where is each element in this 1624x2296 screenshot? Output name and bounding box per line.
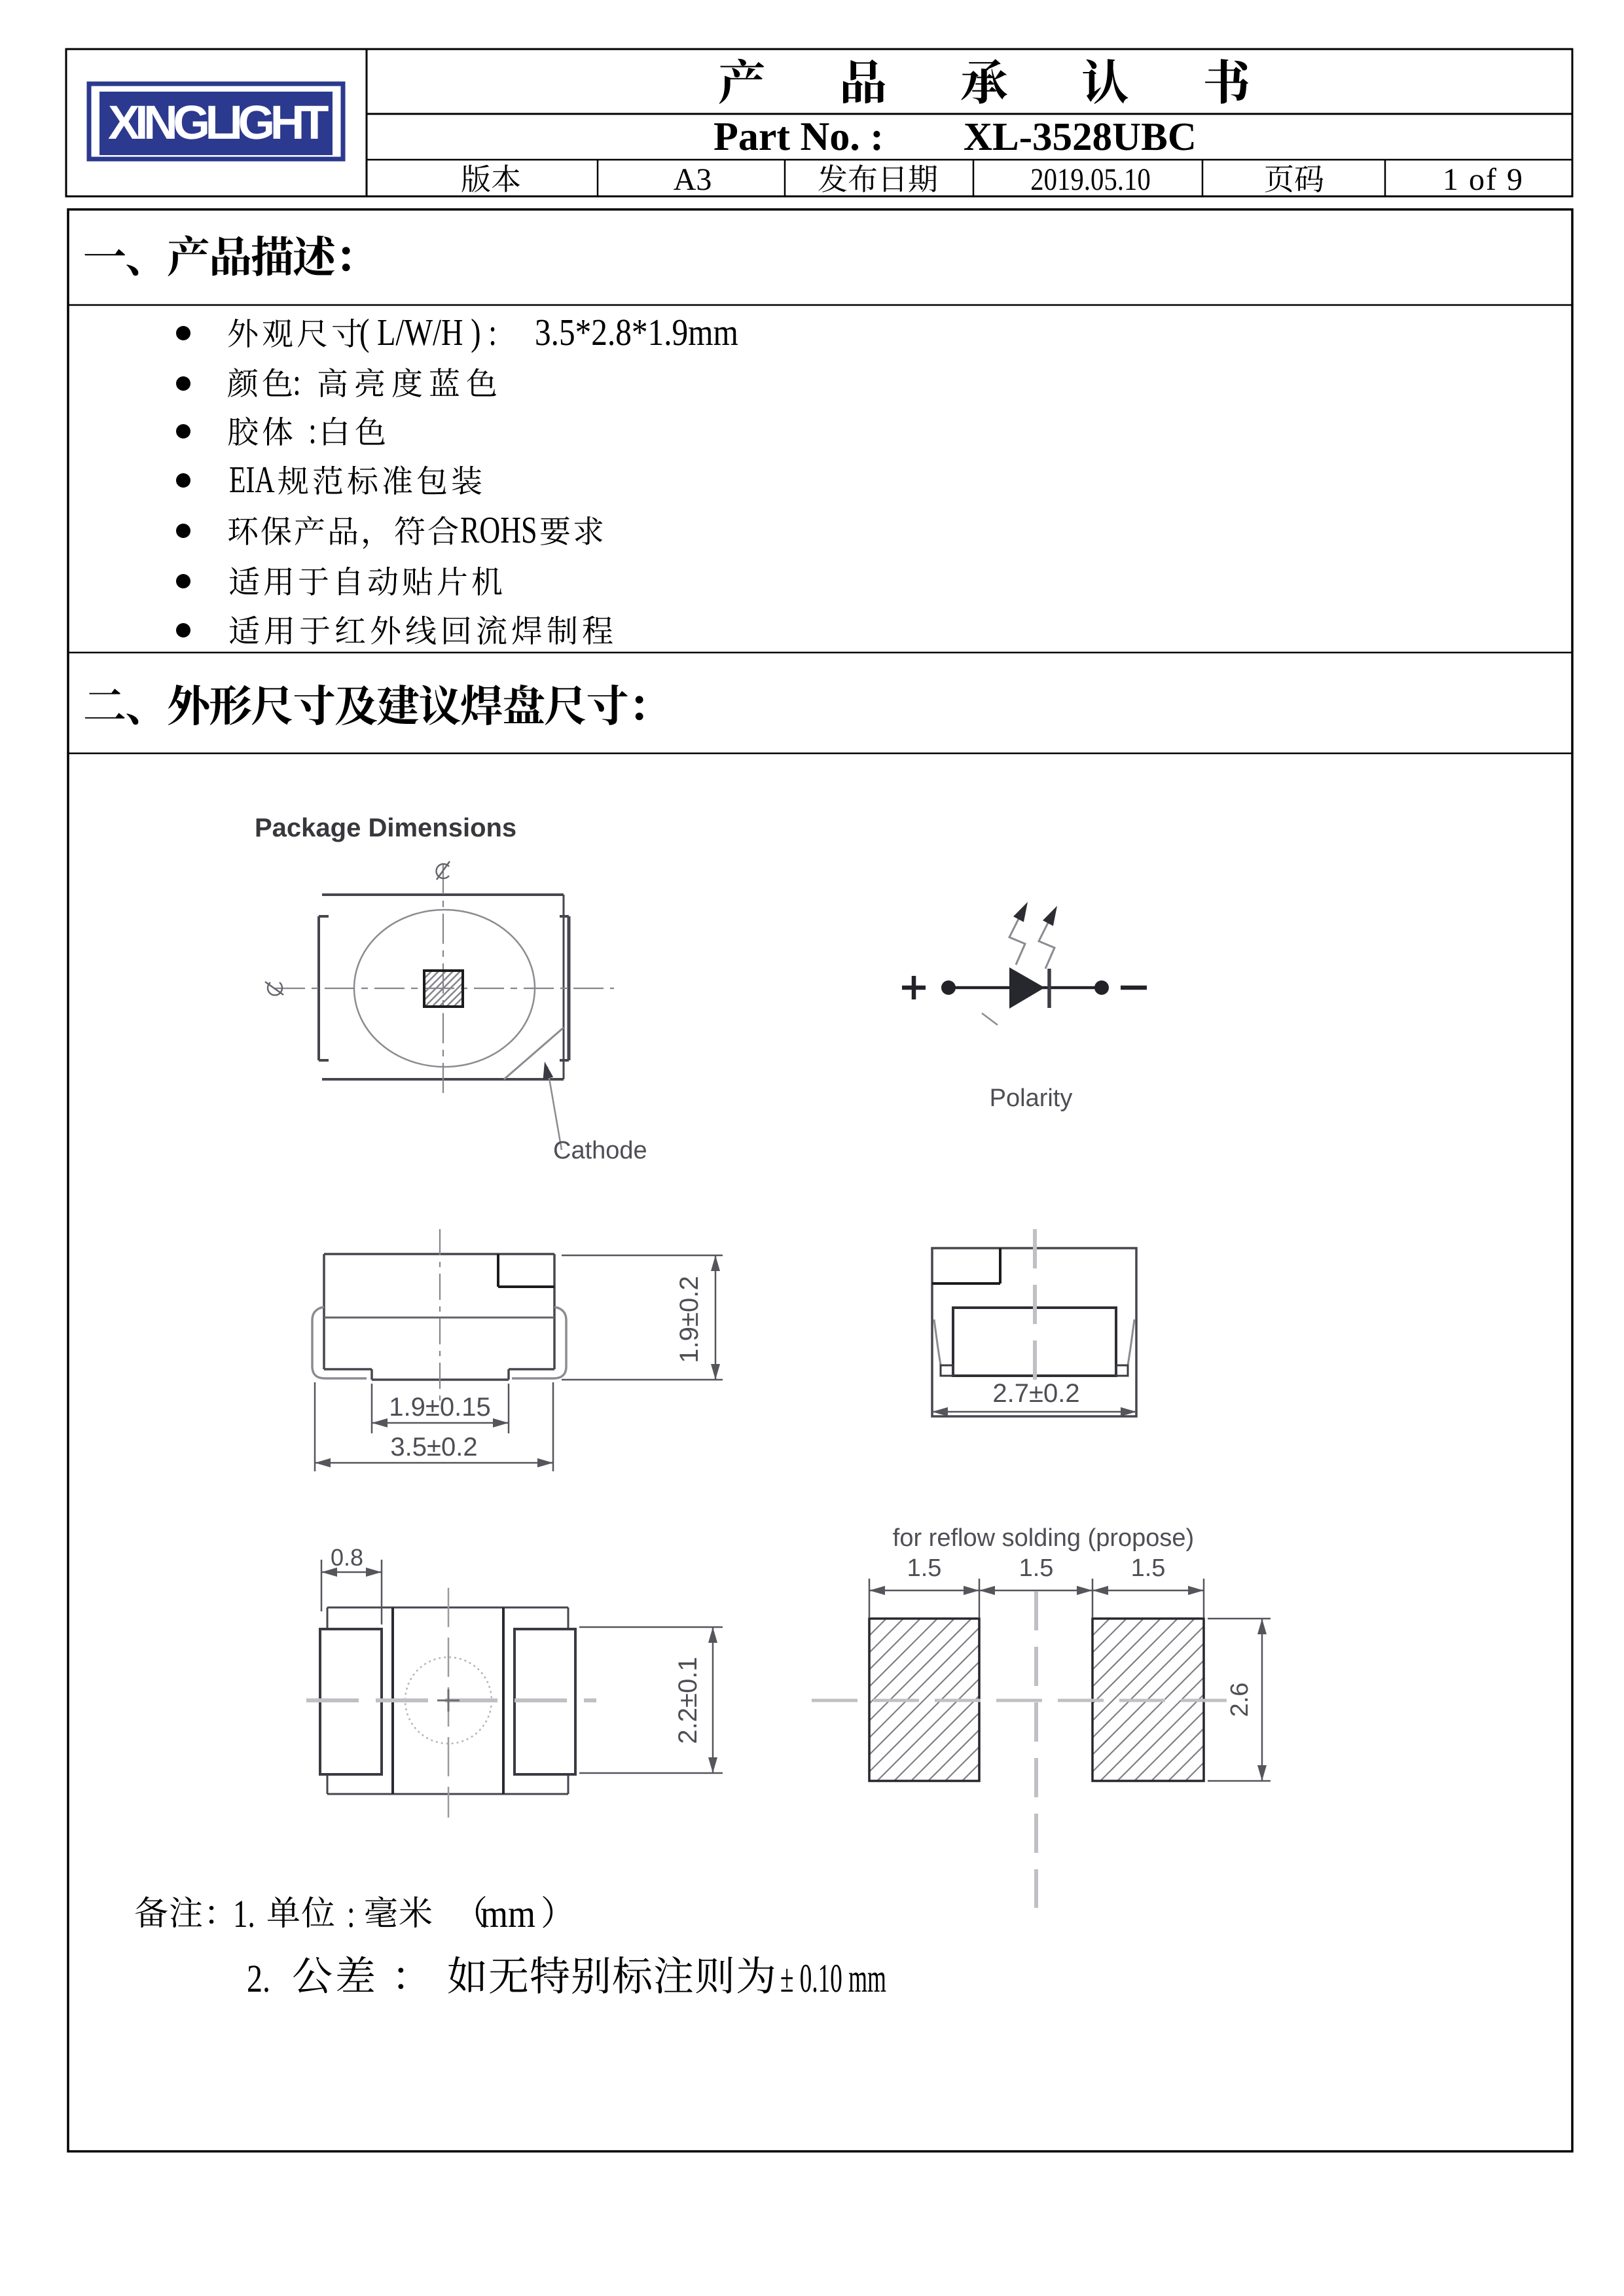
svg-text:1.9±0.15: 1.9±0.15 xyxy=(389,1393,490,1422)
svg-text:Package Dimensions: Package Dimensions xyxy=(255,814,516,842)
svg-text:1.5: 1.5 xyxy=(1131,1554,1166,1582)
svg-text:0.8: 0.8 xyxy=(331,1544,363,1571)
svg-text:1.9±0.2: 1.9±0.2 xyxy=(675,1276,704,1363)
svg-text:3.5±0.2: 3.5±0.2 xyxy=(390,1433,477,1462)
svg-text:Polarity: Polarity xyxy=(990,1085,1073,1112)
svg-text:2.2±0.1: 2.2±0.1 xyxy=(674,1657,702,1744)
svg-text:1.5: 1.5 xyxy=(1019,1554,1054,1582)
svg-text:1.5: 1.5 xyxy=(907,1554,942,1582)
svg-text:2.7±0.2: 2.7±0.2 xyxy=(992,1379,1079,1408)
svg-text:for reflow solding (propose): for reflow solding (propose) xyxy=(893,1524,1194,1552)
svg-text:Cathode: Cathode xyxy=(553,1137,647,1164)
svg-text:2.6: 2.6 xyxy=(1226,1683,1254,1717)
